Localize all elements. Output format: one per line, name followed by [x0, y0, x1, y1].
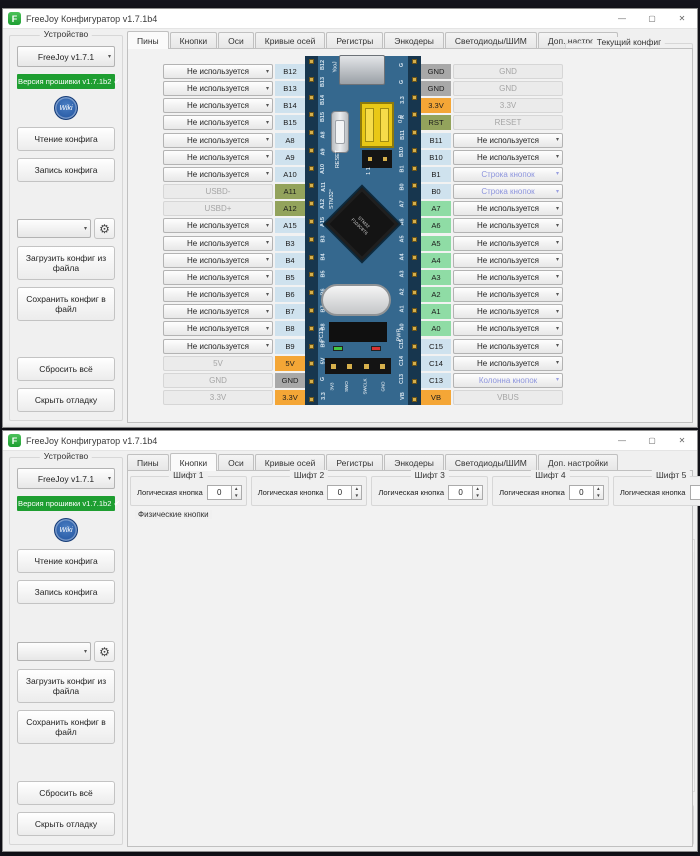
pin-column-left: Не используется▾ B12 Не используется▾ B1…: [163, 64, 305, 405]
pin-label: A4: [421, 253, 451, 268]
spacer: [17, 189, 115, 211]
pin-function-select[interactable]: Не используется▾: [453, 356, 563, 371]
pin-label: A0: [421, 321, 451, 336]
pin-label: A3: [421, 270, 451, 285]
board-pin: [309, 255, 314, 260]
read-config-button[interactable]: Чтение конфига: [17, 127, 115, 151]
pin-function-select[interactable]: Не используется▾: [163, 270, 273, 285]
shift-group: Шифт 3 Логическая кнопка 0 ▲▼: [371, 476, 488, 506]
crystal-oscillator: [321, 284, 391, 316]
board-pin: [309, 308, 314, 313]
pin-row: RST RESET▾: [421, 115, 563, 130]
tab-кнопки[interactable]: Кнопки: [170, 32, 217, 49]
pin-label: B1: [421, 167, 451, 182]
pin-label: RST: [421, 115, 451, 130]
window-controls: — ▢ ✕: [607, 431, 697, 450]
pin-label: C15: [421, 339, 451, 354]
pin-label: B14: [275, 98, 305, 113]
close-button[interactable]: ✕: [667, 9, 697, 28]
chevron-down-icon: ▾: [556, 274, 559, 280]
pin-row: Не используется▾ B14: [163, 98, 305, 113]
logical-button-spinner[interactable]: 0 ▲▼: [690, 485, 700, 500]
tab-оси[interactable]: Оси: [218, 32, 254, 49]
hide-debug-button[interactable]: Скрыть отладку: [17, 812, 115, 836]
chevron-down-icon: ▾: [266, 343, 269, 349]
board-text: YooJ: [332, 62, 338, 73]
freejoy-window-buttons: F FreeJoy Конфигуратор v1.7.1b4 — ▢ ✕ Ус…: [2, 430, 698, 852]
wiki-label: Wiki: [59, 105, 72, 112]
pin-function-select[interactable]: Не используется▾: [163, 287, 273, 302]
pin-function-select[interactable]: Строка кнопок▾: [453, 167, 563, 182]
device-select-value: FreeJoy v1.7.1: [38, 52, 94, 62]
pin-row: Не используется▾ B13: [163, 81, 305, 96]
wiki-label: Wiki: [59, 527, 72, 534]
board-silk-labels-right: GG3.3RB11B10B1B0A7A6A5A4A3A2A1A0C15C14C1…: [397, 56, 408, 405]
board-text: PC13: [319, 328, 325, 342]
pin-label: B6: [275, 287, 305, 302]
pin-row: C15 Не используется▾: [421, 339, 563, 354]
board-pin: [309, 166, 314, 171]
pin-row: C13 Колонна кнопок▾: [421, 373, 563, 388]
logical-button-spinner[interactable]: 0 ▲▼: [569, 485, 604, 500]
pin-label: B5: [275, 270, 305, 285]
pin-function-select: VBUS▾: [453, 390, 563, 405]
pin-function-select[interactable]: Колонна кнопок▾: [453, 373, 563, 388]
pin-row: Не используется▾ B15: [163, 115, 305, 130]
chevron-down-icon: ▾: [266, 154, 269, 160]
tab-оси[interactable]: Оси: [218, 454, 254, 471]
chevron-down-icon: ▾: [556, 343, 559, 349]
board-pin: [412, 183, 417, 188]
tab-энкодеры[interactable]: Энкодеры: [384, 32, 444, 49]
board-pin: [412, 397, 417, 402]
pin-function-select[interactable]: Не используется▾: [453, 236, 563, 251]
gear-icon: ⚙: [99, 645, 110, 659]
board-pin: [309, 130, 314, 135]
pin-function-select[interactable]: Не используется▾: [163, 115, 273, 130]
board-text: 0 0: [398, 115, 404, 123]
pin-row: B10 Не используется▾: [421, 150, 563, 165]
chevron-down-icon: ▾: [556, 360, 559, 366]
chevron-down-icon: ▾: [84, 649, 87, 655]
preset-row: ▾ ⚙: [17, 641, 115, 662]
pin-function-select[interactable]: Не используется▾: [453, 133, 563, 148]
chevron-down-icon: ▾: [266, 86, 269, 92]
pin-function-select: 5V▾: [163, 356, 273, 371]
maximize-button[interactable]: ▢: [637, 9, 667, 28]
pin-label: A1: [421, 304, 451, 319]
save-config-button[interactable]: Сохранить конфиг в файл: [17, 710, 115, 744]
wiki-icon[interactable]: Wiki: [54, 96, 78, 120]
hide-debug-button[interactable]: Скрыть отладку: [17, 388, 115, 412]
pin-function-select[interactable]: Не используется▾: [163, 321, 273, 336]
chevron-down-icon: ▾: [556, 171, 559, 177]
board-pin: [309, 379, 314, 384]
bluepill-board-image: B12B13B14B15A8A9A10A11A12A15B3B4B5B6B7B8…: [305, 56, 421, 405]
pin-label: B0: [421, 184, 451, 199]
pin-function-select[interactable]: Строка кнопок▾: [453, 184, 563, 199]
pin-function-select[interactable]: Не используется▾: [163, 253, 273, 268]
pin-row: Не используется▾ B5: [163, 270, 305, 285]
logical-button-spinner[interactable]: 0 ▲▼: [327, 485, 362, 500]
pin-function-select[interactable]: Не используется▾: [453, 150, 563, 165]
pin-row: GND GND▾: [421, 81, 563, 96]
chevron-down-icon: ▾: [556, 292, 559, 298]
pin-row: A4 Не используется▾: [421, 253, 563, 268]
shift-group: Шифт 2 Логическая кнопка 0 ▲▼: [251, 476, 368, 506]
board-pin: [309, 361, 314, 366]
pin-row: GND▾ GND: [163, 373, 305, 388]
chevron-down-icon: ▾: [108, 54, 111, 60]
pin-function-select[interactable]: Не используется▾: [453, 287, 563, 302]
tab-светодиоды-шим[interactable]: Светодиоды/ШИМ: [445, 32, 537, 49]
board-pin: [412, 166, 417, 171]
board-pin: [412, 272, 417, 277]
pin-label: B15: [275, 115, 305, 130]
shift-group: Шифт 1 Логическая кнопка 0 ▲▼: [130, 476, 247, 506]
board-pin: [309, 59, 314, 64]
write-config-button[interactable]: Запись конфига: [17, 158, 115, 182]
pin-function-select[interactable]: Не используется▾: [163, 133, 273, 148]
chevron-down-icon: ▾: [266, 69, 269, 75]
pin-label: A2: [421, 287, 451, 302]
settings-button[interactable]: ⚙: [94, 641, 115, 662]
board-pin: [309, 237, 314, 242]
chevron-down-icon: ▾: [556, 137, 559, 143]
chevron-down-icon: ▾: [266, 171, 269, 177]
pin-row: 3.3V 3.3V▾: [421, 98, 563, 113]
pin-row: Не используется▾ B6: [163, 287, 305, 302]
tab-кривые-осей[interactable]: Кривые осей: [255, 32, 326, 49]
board-pin: [412, 255, 417, 260]
pin-function-select[interactable]: Не используется▾: [163, 98, 273, 113]
board-pin: [309, 344, 314, 349]
board-pin: [309, 148, 314, 153]
board-pin: [412, 130, 417, 135]
save-config-button[interactable]: Сохранить конфиг в файл: [17, 287, 115, 321]
pin-row: 5V▾ 5V: [163, 356, 305, 371]
pin-row: A6 Не используется▾: [421, 218, 563, 233]
tab-bar: ПиныКнопкиОсиКривые осейРегистрыЭнкодеры…: [127, 453, 691, 471]
buttons-tab-pane: [127, 470, 693, 847]
spacer: [17, 611, 115, 634]
tab-пины[interactable]: Пины: [127, 31, 169, 49]
sidebar-device-panel: Устройство FreeJoy v1.7.1▾ Версия прошив…: [9, 35, 123, 421]
pin-label: A8: [275, 133, 305, 148]
pin-label: C13: [421, 373, 451, 388]
board-pin: [412, 59, 417, 64]
pin-label: 3.3V: [275, 390, 305, 405]
board-silk-labels-left: B12B13B14B15A8A9A10A11A12A15B3B4B5B6B7B8…: [318, 56, 329, 405]
board-pin: [412, 344, 417, 349]
board-pin: [309, 219, 314, 224]
chevron-down-icon: ▾: [556, 240, 559, 246]
usb-connector: [339, 55, 385, 85]
pin-function-select[interactable]: Не используется▾: [163, 150, 273, 165]
reset-all-button[interactable]: Сбросить всё: [17, 357, 115, 381]
pin-header-strip: [305, 56, 318, 405]
window-title: FreeJoy Конфигуратор v1.7.1b4: [26, 14, 157, 24]
firmware-version-badge: Версия прошивки v1.7.1b2 ✔: [17, 74, 115, 89]
pin-function-select: 3.3V▾: [453, 98, 563, 113]
device-select[interactable]: FreeJoy v1.7.1▾: [17, 46, 115, 67]
pin-row: Не используется▾ B4: [163, 253, 305, 268]
pin-row: A0 Не используется▾: [421, 321, 563, 336]
pin-label: B13: [275, 81, 305, 96]
pin-row: B1 Строка кнопок▾: [421, 167, 563, 182]
pin-row: Не используется▾ A9: [163, 150, 305, 165]
close-button[interactable]: ✕: [667, 431, 697, 450]
logical-button-spinner[interactable]: 0 ▲▼: [207, 485, 242, 500]
pin-row: Не используется▾ A8: [163, 133, 305, 148]
pin-label: A10: [275, 167, 305, 182]
chevron-down-icon: ▾: [266, 120, 269, 126]
titlebar[interactable]: F FreeJoy Конфигуратор v1.7.1b4 — ▢ ✕: [3, 431, 697, 451]
pin-function-select[interactable]: Не используется▾: [453, 304, 563, 319]
spin-down-icon: ▼: [473, 493, 482, 500]
preset-row: ▾ ⚙: [17, 218, 115, 239]
chevron-down-icon: ▾: [108, 476, 111, 482]
spinner-arrows[interactable]: ▲▼: [351, 485, 362, 500]
pin-column-right: GND GND▾ GND GND▾ 3.3V 3.3V▾ RST RESET▾ …: [421, 64, 563, 405]
pin-function-select[interactable]: Не используется▾: [163, 64, 273, 79]
shift-row: Шифт 1 Логическая кнопка 0 ▲▼ Шифт 2 Лог…: [130, 476, 694, 506]
preset-select[interactable]: ▾: [17, 219, 91, 238]
titlebar[interactable]: F FreeJoy Конфигуратор v1.7.1b4 — ▢ ✕: [3, 9, 697, 29]
spacer: [17, 328, 115, 350]
pin-row: USBD-▾ A11: [163, 184, 305, 199]
pin-function-select[interactable]: Не используется▾: [453, 201, 563, 216]
chevron-down-icon: ▾: [556, 206, 559, 212]
board-text: STM32°: [329, 189, 335, 209]
board-pin: [412, 112, 417, 117]
board-text: 1 1: [366, 167, 372, 175]
tab-кнопки[interactable]: Кнопки: [170, 453, 217, 471]
pin-label: B9: [275, 339, 305, 354]
pin-row: Не используется▾ B7: [163, 304, 305, 319]
sidebar-group-title: Устройство: [40, 29, 92, 39]
pin-label: GND: [421, 81, 451, 96]
stm32-chip: STM32F103C8T6: [325, 187, 399, 261]
pin-label: C14: [421, 356, 451, 371]
sidebar-device-panel: Устройство FreeJoy v1.7.1▾ Версия прошив…: [9, 457, 123, 845]
device-select[interactable]: FreeJoy v1.7.1▾: [17, 468, 115, 489]
board-pin: [412, 308, 417, 313]
board-pin: [412, 237, 417, 242]
board-pin: [309, 183, 314, 188]
pin-label: A9: [275, 150, 305, 165]
board-pin: [412, 95, 417, 100]
spin-down-icon: ▼: [352, 493, 361, 500]
pin-row: USBD+▾ A12: [163, 201, 305, 216]
pin-function-select[interactable]: Не используется▾: [163, 236, 273, 251]
pin-label: VB: [421, 390, 451, 405]
pin-function-select: GND▾: [163, 373, 273, 388]
app-icon: F: [8, 434, 21, 447]
pin-label: B7: [275, 304, 305, 319]
pin-label: A7: [421, 201, 451, 216]
chevron-down-icon: ▾: [266, 240, 269, 246]
chevron-down-icon: ▾: [556, 154, 559, 160]
tab-светодиоды-шим[interactable]: Светодиоды/ШИМ: [445, 454, 537, 471]
chevron-down-icon: ▾: [556, 257, 559, 263]
tab-доп-настройки[interactable]: Доп. настройки: [538, 454, 618, 471]
chevron-down-icon: ▾: [556, 223, 559, 229]
shift-group: Шифт 4 Логическая кнопка 0 ▲▼: [492, 476, 609, 506]
pin-row: B11 Не используется▾: [421, 133, 563, 148]
board-pin: [309, 272, 314, 277]
board-pin: [412, 77, 417, 82]
board-text: PWR: [396, 329, 402, 342]
board-pin: [412, 326, 417, 331]
pin-label: 5V: [275, 356, 305, 371]
pin-row: A7 Не используется▾: [421, 201, 563, 216]
pin-label: A11: [275, 184, 305, 199]
spinner-arrows[interactable]: ▲▼: [231, 485, 242, 500]
chevron-down-icon: ▾: [556, 326, 559, 332]
pin-label: A5: [421, 236, 451, 251]
window-title: FreeJoy Конфигуратор v1.7.1b4: [26, 436, 157, 446]
pin-function-select[interactable]: Не используется▾: [453, 270, 563, 285]
pin-row: Не используется▾ B12: [163, 64, 305, 79]
spinner-arrows[interactable]: ▲▼: [593, 485, 604, 500]
minimize-button[interactable]: —: [607, 431, 637, 450]
pin-label: B12: [275, 64, 305, 79]
pin-function-select: RESET▾: [453, 115, 563, 130]
pin-label: GND: [421, 64, 451, 79]
chevron-down-icon: ▾: [556, 309, 559, 315]
pin-function-select: GND▾: [453, 64, 563, 79]
pin-function-select[interactable]: Не используется▾: [163, 81, 273, 96]
pin-row: Не используется▾ B9: [163, 339, 305, 354]
pin-function-select[interactable]: Не используется▾: [163, 167, 273, 182]
load-config-button[interactable]: Загрузить конфиг из файла: [17, 669, 115, 703]
tab-энкодеры[interactable]: Энкодеры: [384, 454, 444, 471]
minimize-button[interactable]: —: [607, 9, 637, 28]
boot-jumper-pins: [362, 150, 392, 168]
chevron-down-icon: ▾: [266, 103, 269, 109]
pin-function-select[interactable]: Не используется▾: [163, 339, 273, 354]
pin-row: C14 Не используется▾: [421, 356, 563, 371]
board-pin: [412, 361, 417, 366]
freejoy-window-pins: F FreeJoy Конфигуратор v1.7.1b4 — ▢ ✕ Ус…: [2, 8, 698, 428]
spin-down-icon: ▼: [232, 493, 241, 500]
board-pin: [309, 326, 314, 331]
power-led-red: [371, 346, 381, 351]
pin-label: 3.3V: [421, 98, 451, 113]
board-pin: [309, 290, 314, 295]
pin-label: A6: [421, 218, 451, 233]
chevron-down-icon: ▾: [266, 309, 269, 315]
physical-buttons-title: Физические кнопки: [135, 510, 212, 519]
tab-пины[interactable]: Пины: [127, 454, 169, 471]
firmware-version-badge: Версия прошивки v1.7.1b2 ✔: [17, 496, 115, 511]
pin-label: B3: [275, 236, 305, 251]
chevron-down-icon: ▾: [266, 257, 269, 263]
pin-function-select: USBD+▾: [163, 201, 273, 216]
board-pin: [412, 290, 417, 295]
pin-function-select[interactable]: Не используется▾: [163, 304, 273, 319]
pin-label: B8: [275, 321, 305, 336]
preset-select[interactable]: ▾: [17, 642, 91, 661]
pin-label: A15: [275, 218, 305, 233]
pin-row: 3.3V▾ 3.3V: [163, 390, 305, 405]
board-pin: [412, 201, 417, 206]
chevron-down-icon: ▾: [266, 326, 269, 332]
spin-down-icon: ▼: [594, 493, 603, 500]
pin-function-select[interactable]: Не используется▾: [453, 218, 563, 233]
wiki-icon[interactable]: Wiki: [54, 518, 78, 542]
maximize-button[interactable]: ▢: [637, 431, 667, 450]
config-panel-title: Текущий конфиг: [593, 37, 665, 47]
logical-button-spinner[interactable]: 0 ▲▼: [448, 485, 483, 500]
chevron-down-icon: ▾: [556, 189, 559, 195]
pin-row: Не используется▾ B3: [163, 236, 305, 251]
pin-function-select: 3.3V▾: [163, 390, 273, 405]
pin-label: A12: [275, 201, 305, 216]
pin-row: A2 Не используется▾: [421, 287, 563, 302]
pin-row: A1 Не используется▾: [421, 304, 563, 319]
device-select-value: FreeJoy v1.7.1: [38, 474, 94, 484]
pin-function-select[interactable]: Не используется▾: [453, 339, 563, 354]
board-pin: [309, 201, 314, 206]
chevron-down-icon: ▾: [556, 377, 559, 383]
pin-row: VB VBUS▾: [421, 390, 563, 405]
pin-header-strip: [408, 56, 421, 405]
pin-row: Не используется▾ A15: [163, 218, 305, 233]
pin-function-select: GND▾: [453, 81, 563, 96]
chevron-down-icon: ▾: [266, 137, 269, 143]
read-config-button[interactable]: Чтение конфига: [17, 549, 115, 573]
tab-кривые-осей[interactable]: Кривые осей: [255, 454, 326, 471]
board-pin: [309, 77, 314, 82]
tab-регистры[interactable]: Регистры: [326, 32, 383, 49]
tab-регистры[interactable]: Регистры: [326, 454, 383, 471]
board-pin: [412, 379, 417, 384]
pin-row: A5 Не используется▾: [421, 236, 563, 251]
pin-row: Не используется▾ A10: [163, 167, 305, 182]
board-pin: [309, 95, 314, 100]
pin-row: A3 Не используется▾: [421, 270, 563, 285]
board-pin: [309, 397, 314, 402]
sidebar-group-title: Устройство: [40, 451, 92, 461]
pin-row: GND GND▾: [421, 64, 563, 79]
reset-all-button[interactable]: Сбросить всё: [17, 781, 115, 805]
write-config-button[interactable]: Запись конфига: [17, 580, 115, 604]
pin-label: GND: [275, 373, 305, 388]
swd-header: [325, 358, 391, 374]
spinner-arrows[interactable]: ▲▼: [472, 485, 483, 500]
chevron-down-icon: ▾: [266, 223, 269, 229]
boot-jumpers: [360, 102, 394, 148]
chevron-down-icon: ▾: [266, 274, 269, 280]
gear-icon: ⚙: [99, 222, 110, 236]
pin-function-select[interactable]: Не используется▾: [163, 218, 273, 233]
pin-label: B10: [421, 150, 451, 165]
board-pin: [309, 112, 314, 117]
load-config-button[interactable]: Загрузить конфиг из файла: [17, 246, 115, 280]
board-pin: [412, 148, 417, 153]
pin-function-select[interactable]: Не используется▾: [453, 253, 563, 268]
shift-group: Шифт 5 Логическая кнопка 0 ▲▼: [613, 476, 700, 506]
board-component: [329, 322, 387, 342]
pin-row: Не используется▾ B8: [163, 321, 305, 336]
pin-function-select[interactable]: Не используется▾: [453, 321, 563, 336]
swd-pin-labels: 3V3SWOSWCLKGND: [325, 374, 391, 398]
settings-button[interactable]: ⚙: [94, 218, 115, 239]
chevron-down-icon: ▾: [84, 226, 87, 232]
pin-function-select: USBD-▾: [163, 184, 273, 199]
